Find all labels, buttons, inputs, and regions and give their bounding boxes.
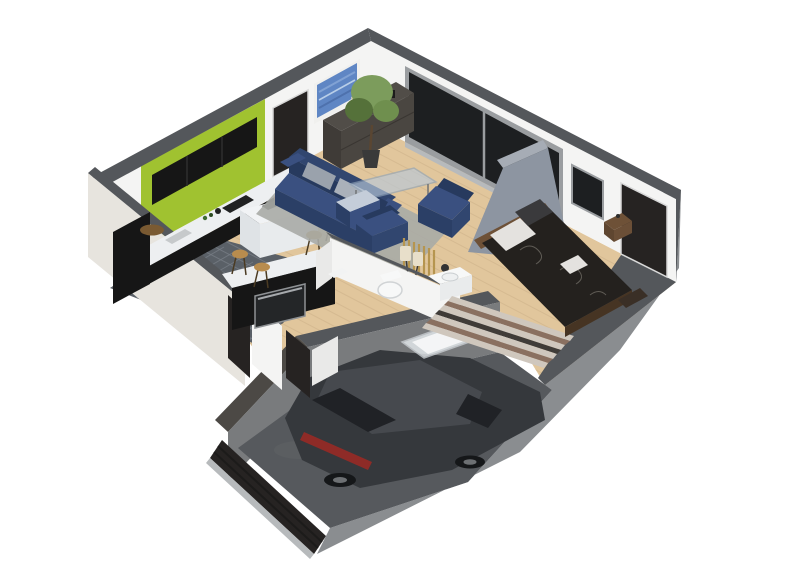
round-kitchen-mat [140, 225, 164, 236]
lamp-shade [413, 252, 423, 266]
lamp-shade [400, 246, 411, 261]
bottle [209, 213, 213, 217]
toilet-bowl [378, 282, 402, 298]
bowl [215, 208, 221, 214]
tree-foliage [345, 98, 373, 122]
bottle [203, 216, 207, 220]
sink-basin [442, 273, 458, 281]
floorplan-render [0, 0, 800, 566]
plant-pot [362, 150, 380, 168]
tree-foliage [373, 100, 399, 122]
floorplan-canvas [0, 0, 800, 566]
car-rear-rim [333, 477, 347, 483]
nightstand-decor [616, 214, 620, 218]
car-front-rim [464, 459, 477, 465]
